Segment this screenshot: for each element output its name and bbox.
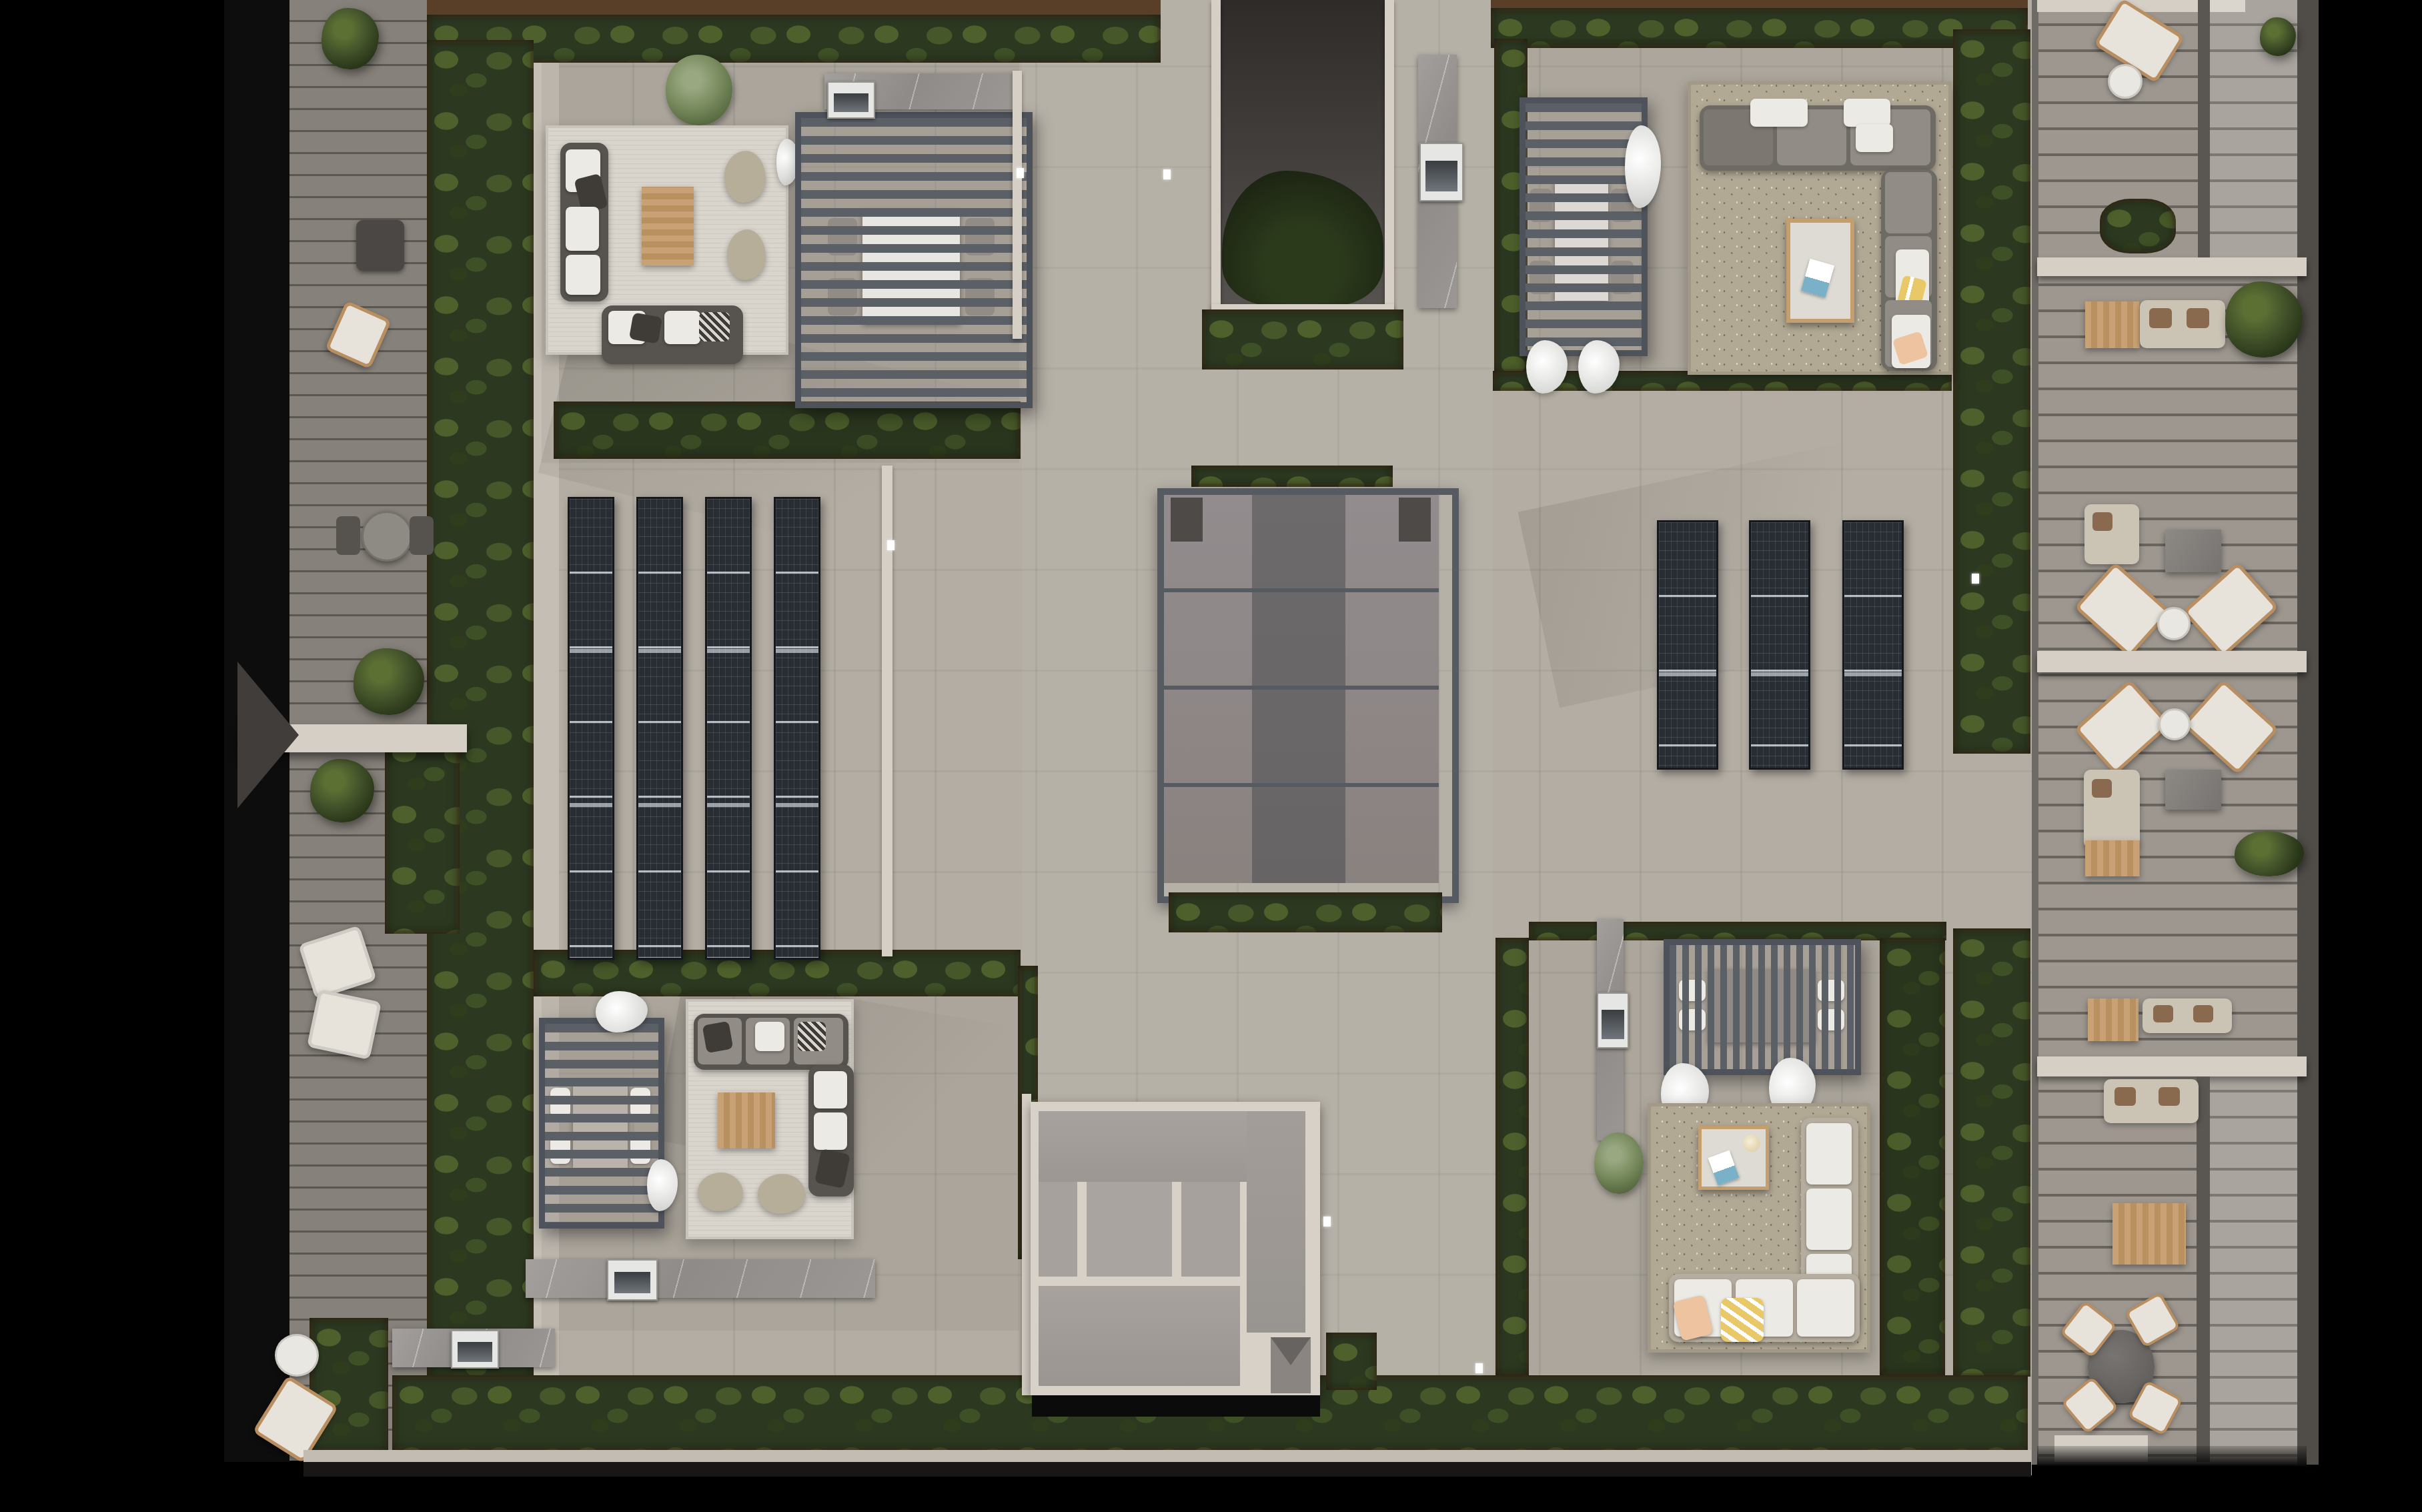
- sofa-headrest: [1750, 99, 1808, 127]
- solar-array-left-col-2: [636, 497, 683, 960]
- balcony3-tree: [2235, 831, 2304, 876]
- grill-window: [614, 1272, 651, 1293]
- bottomright-grill: [1597, 992, 1629, 1048]
- balcony-divider-1: [2037, 257, 2307, 276]
- pillow-brown: [2159, 1087, 2180, 1106]
- hedge-right-outer-lower: [1953, 928, 2030, 1377]
- hedge-topleft-unit-south: [554, 402, 1021, 459]
- walkway-spotlight: [1017, 168, 1024, 178]
- stairhouse-parapet-west: [1022, 1094, 1031, 1395]
- sofa-seat-white: [1797, 1279, 1854, 1337]
- walkway-spotlight: [887, 540, 894, 550]
- solar-array-right-col-3: [1842, 520, 1904, 770]
- chute-funnel: [1271, 1337, 1311, 1365]
- hedge-top-right: [1491, 8, 2028, 48]
- deck-chair-dark: [356, 220, 404, 271]
- solar-array-right-col-1: [1657, 520, 1718, 770]
- right-balcony-outer-edge: [2297, 0, 2319, 1465]
- deck-tree-lower: [310, 759, 374, 822]
- walkway-spotlight: [1475, 1363, 1483, 1373]
- pillow-brown: [2114, 1087, 2136, 1106]
- pillow-brown: [2092, 512, 2112, 531]
- walkway-spotlight: [1972, 574, 1979, 584]
- balcony1-shrub: [2100, 199, 2176, 253]
- sofa-pillow: [814, 1071, 847, 1108]
- hedge-stairhouse-east: [1326, 1333, 1377, 1390]
- deck-bistro-table: [362, 511, 412, 562]
- deck-bistro-chair-left: [336, 516, 360, 555]
- pergola-slats: [1526, 103, 1642, 350]
- sofa-pillow-dark: [702, 1021, 734, 1053]
- balcony-subdivider-2: [2197, 1076, 2210, 1462]
- hedge-left-bulge: [385, 734, 460, 934]
- skylight-planter-north: [1191, 466, 1393, 487]
- balcony2-tree: [2225, 281, 2303, 357]
- sofa-section: [1885, 172, 1932, 233]
- topleft-pergola: [795, 112, 1033, 408]
- balcony3-sofa-bottom: [2143, 998, 2232, 1033]
- sofa-pillow: [814, 1112, 847, 1150]
- topleft-sofa-left: [560, 143, 608, 301]
- skylight-corner-hatch-left: [1171, 498, 1203, 542]
- stairhouse-panel-rightcol: [1247, 1111, 1305, 1333]
- balcony1-side-table: [2108, 64, 2143, 99]
- pillow-brown: [2149, 308, 2172, 328]
- pergola-slats: [801, 118, 1027, 402]
- balcony-divider-2: [2037, 651, 2307, 672]
- stairhouse-panel-mid-3: [1181, 1182, 1240, 1277]
- sofa-pillow: [1856, 124, 1893, 152]
- table-lamp: [1743, 1135, 1760, 1152]
- deck-side-table-bottom: [275, 1334, 319, 1377]
- bottomleft-grill: [607, 1259, 658, 1301]
- bottom-shadow-band: [304, 1462, 2031, 1477]
- balcony3-round-table: [2159, 708, 2191, 740]
- sofa-pillow-dark: [814, 1149, 850, 1189]
- balcony3-marble-table: [2165, 770, 2221, 810]
- sofa-seat-white: [1806, 1189, 1852, 1250]
- bottomleft-ottoman-2: [758, 1174, 806, 1214]
- sofa-pillow: [664, 311, 700, 344]
- grill-window: [1425, 161, 1457, 191]
- stairhouse-shadow-band: [1032, 1395, 1320, 1417]
- bottomleft-ottoman-1: [698, 1173, 743, 1211]
- deck-tree-upper: [354, 648, 424, 715]
- solar-array-right-col-2: [1749, 520, 1810, 770]
- bottomleft-pergola: [539, 1018, 664, 1229]
- topleft-unit-parapet-east: [1013, 71, 1022, 339]
- solar-array-left-col-1: [568, 497, 614, 960]
- balcony4-sofa: [2104, 1079, 2199, 1123]
- atrium-parapet-west: [1211, 0, 1221, 312]
- deck-shrub-top: [322, 8, 379, 69]
- bottomleft-sofa-top: [694, 1014, 848, 1070]
- sofa-pillow: [566, 207, 599, 251]
- roof-edge-wedge: [237, 662, 299, 808]
- pillow-brown: [2153, 1005, 2173, 1022]
- deck-bistro-chair-right: [410, 516, 434, 555]
- grill-window: [834, 93, 868, 113]
- skylight-corner-hatch-right: [1399, 498, 1431, 542]
- topright-coffee-table: [1786, 219, 1854, 323]
- balcony3-sofa: [2084, 770, 2140, 848]
- hedge-bottomright-unit-west: [1495, 938, 1529, 1375]
- solar-array-left-col-4: [774, 497, 820, 960]
- skylight-mullion: [1164, 686, 1439, 690]
- bottomright-coffee-table: [1698, 1126, 1769, 1190]
- balcony-divider-3: [2037, 1056, 2307, 1076]
- bottomleft-sofa-right: [808, 1064, 854, 1197]
- pillow-brown: [2187, 308, 2209, 328]
- rooftop-plan-stage: [0, 0, 2422, 1512]
- hedge-top-left: [427, 15, 1161, 63]
- hedge-bottomright-unit-east: [1880, 938, 1945, 1375]
- bottomleft-counter: [526, 1259, 875, 1298]
- lower-terrace-grill: [451, 1330, 499, 1369]
- stairhouse-panel-mid-1: [1039, 1182, 1077, 1277]
- skylight-planter-south: [1169, 892, 1442, 932]
- sofa-pillow: [566, 255, 600, 295]
- topright-sofa-top: [1700, 105, 1936, 171]
- balcony2-sofa-top: [2140, 300, 2225, 348]
- sofa-pillow-striped: [798, 1022, 826, 1051]
- topright-sofa-right: [1881, 169, 1937, 371]
- topleft-ottoman-2: [727, 229, 766, 280]
- magazine: [1801, 259, 1834, 298]
- balcony2-round-table: [2157, 607, 2191, 640]
- atrium-grill: [1419, 143, 1463, 201]
- atrium-parapet-east: [1385, 0, 1394, 312]
- stairhouse-chute: [1269, 1335, 1313, 1395]
- balcony-corner-shrub: [2260, 17, 2296, 56]
- pergola-slats: [545, 1024, 658, 1223]
- pillow-brown: [2092, 779, 2112, 798]
- pillow-brown: [2193, 1005, 2213, 1022]
- magazine: [1708, 1151, 1740, 1186]
- solar-terrace-parapet-east: [882, 466, 892, 956]
- solar-array-left-col-3: [705, 497, 752, 960]
- sofa-pillow-dark: [629, 312, 662, 343]
- grill-window: [1602, 1010, 1624, 1039]
- balcony2-marble-table: [2165, 530, 2221, 572]
- main-vs-balcony-divider: [2032, 0, 2038, 1465]
- balcony-bottom-shadow: [2037, 1446, 2307, 1466]
- balcony3-sideboard: [2085, 840, 2140, 876]
- balcony4-slatted-table: [2112, 1203, 2186, 1265]
- balcony-subdivider-1: [2198, 0, 2210, 259]
- pergola-slats-vertical: [1670, 945, 1855, 1069]
- hedge-right-outer-upper: [1953, 29, 2030, 754]
- balcony2-sofa-left: [2084, 504, 2139, 564]
- bottom-walk-strip: [304, 1450, 2031, 1463]
- walkway-spotlight: [1323, 1217, 1331, 1227]
- topleft-coffee-table: [642, 187, 694, 265]
- sofa-headrest: [1844, 99, 1890, 127]
- bottomleft-coffee-table: [718, 1092, 775, 1149]
- throw-yellow: [1721, 1298, 1764, 1342]
- topleft-sofa-bottom: [602, 305, 743, 364]
- skylight-mullion: [1164, 588, 1439, 592]
- hedge-left-column: [427, 40, 534, 1378]
- walkway-spotlight: [1163, 169, 1171, 179]
- sofa-seat-white: [1806, 1123, 1852, 1185]
- skylight-mullion: [1164, 783, 1439, 787]
- sofa-pillow: [755, 1022, 784, 1051]
- topright-pergola: [1520, 97, 1648, 356]
- stairhouse-panel-bottom: [1039, 1286, 1240, 1386]
- central-skylight: [1157, 488, 1459, 903]
- topleft-olive-tree: [666, 55, 732, 125]
- stairhouse-panel-mid-2: [1087, 1182, 1172, 1277]
- balcony3-bench: [2088, 998, 2139, 1041]
- bottomright-pergola: [1664, 939, 1861, 1075]
- hedge-atrium-south: [1202, 309, 1403, 369]
- grill-window: [458, 1342, 492, 1362]
- balcony2-sideboard: [2085, 301, 2140, 348]
- topleft-grill: [827, 81, 875, 119]
- bottomright-potted-tree: [1594, 1132, 1644, 1194]
- sofa-pillow-striped: [699, 312, 730, 341]
- balcony4-lighter-deck: [2210, 1076, 2297, 1462]
- topleft-ottoman-1: [724, 151, 766, 203]
